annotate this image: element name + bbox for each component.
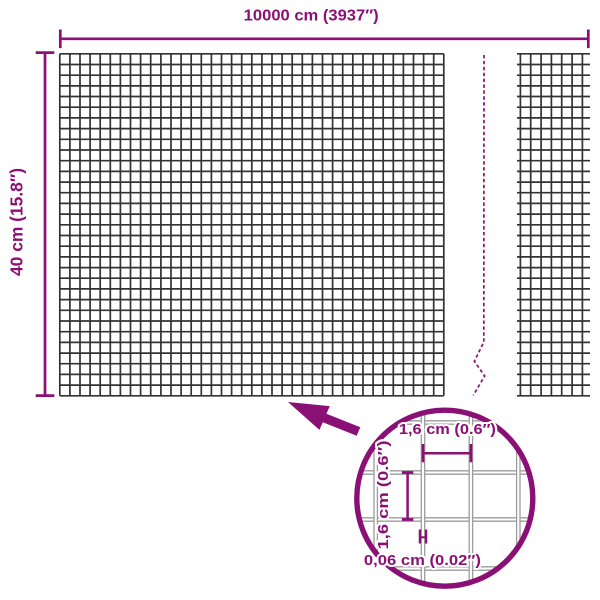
svg-text:0,06 cm (0.02″): 0,06 cm (0.02″) [364,552,481,569]
svg-text:1,6 cm (0.6″): 1,6 cm (0.6″) [399,422,496,438]
svg-text:1,6 cm (0.6″): 1,6 cm (0.6″) [375,441,392,550]
svg-text:40 cm (15.8″): 40 cm (15.8″) [6,168,26,276]
svg-text:10000 cm (3937″): 10000 cm (3937″) [244,7,379,24]
